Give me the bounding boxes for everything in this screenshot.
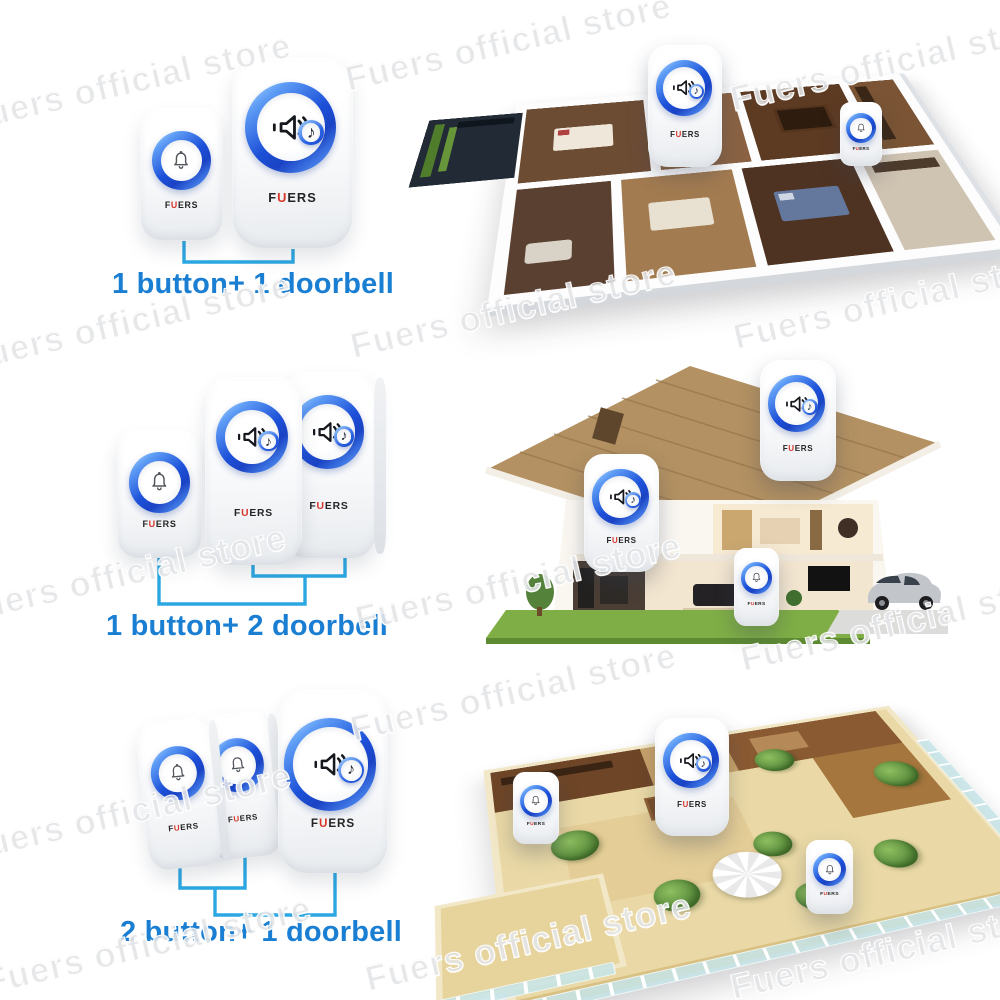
doorbell-receiver: ♪ FUERS xyxy=(655,718,729,836)
brand-logo: FUERS xyxy=(117,519,202,529)
music-note-icon: ♪ xyxy=(334,426,355,447)
led-ring: ♪ xyxy=(592,469,648,525)
brand-logo: FUERS xyxy=(806,891,853,897)
music-note-icon: ♪ xyxy=(802,399,818,415)
led-ring xyxy=(148,743,207,802)
doorbell-button-transmitter: FUERS xyxy=(117,430,202,558)
room-bath-1 xyxy=(504,181,615,295)
doorbell-receiver: ♪ FUERS xyxy=(278,690,388,873)
doorbell-receiver: ♪ FUERS xyxy=(232,58,353,248)
doorbell-button-transmitter: FUERS xyxy=(140,108,223,240)
doorbell-button-transmitter: FUERS xyxy=(734,548,779,626)
brand-logo: FUERS xyxy=(840,146,882,151)
music-note-icon: ♪ xyxy=(625,492,641,508)
doorbell-button-transmitter: FUERS xyxy=(134,716,225,871)
terrace-deck xyxy=(483,706,1000,1000)
product-infographic: FUERS ♪ FUERS ♪ FUERS FUERS xyxy=(0,0,1000,1000)
brand-logo: FUERS xyxy=(734,602,779,607)
doorbell-receiver: ♪ FUERS xyxy=(760,360,836,481)
led-ring xyxy=(129,452,189,512)
room-bedroom-2 xyxy=(621,169,756,281)
scene-apartment-floor-plan xyxy=(485,35,990,280)
brand-logo: FUERS xyxy=(140,200,223,210)
music-note-icon: ♪ xyxy=(258,431,278,451)
brand-logo: FUERS xyxy=(232,190,353,205)
bell-icon xyxy=(157,752,199,794)
led-ring: ♪ xyxy=(216,401,289,474)
music-note-icon: ♪ xyxy=(298,120,323,145)
brand-logo: FUERS xyxy=(513,822,559,827)
brand-logo: FUERS xyxy=(205,508,302,519)
doorbell-button-transmitter: FUERS xyxy=(840,102,882,166)
led-ring: ♪ xyxy=(656,60,712,116)
led-ring: ♪ xyxy=(768,375,825,432)
tree xyxy=(867,836,926,871)
led-ring: ♪ xyxy=(663,733,719,789)
floor-plan xyxy=(486,73,1000,316)
room-media xyxy=(409,113,523,188)
bell-icon xyxy=(524,789,547,812)
brand-logo: FUERS xyxy=(145,819,222,836)
music-note-icon: ♪ xyxy=(696,756,712,772)
led-ring xyxy=(846,113,876,143)
led-ring xyxy=(152,131,211,190)
bell-icon xyxy=(745,566,768,589)
doorbell-button-transmitter: FUERS xyxy=(806,840,853,914)
bell-icon xyxy=(850,118,871,139)
brand-logo: FUERS xyxy=(584,536,659,545)
doorbell-receiver: ♪ FUERS xyxy=(648,45,722,167)
bell-icon xyxy=(161,140,203,182)
led-ring: ♪ xyxy=(284,718,376,810)
room-bedroom-1 xyxy=(518,100,651,184)
brand-logo: FUERS xyxy=(278,817,388,830)
led-ring xyxy=(813,853,846,886)
scene-house-cutaway xyxy=(478,352,953,652)
doorbell-receiver: ♪ FUERS xyxy=(205,377,302,565)
brand-logo: FUERS xyxy=(760,444,836,453)
music-note-icon: ♪ xyxy=(338,757,364,783)
bell-icon xyxy=(818,858,842,882)
brand-logo: FUERS xyxy=(655,800,729,809)
brand-logo: FUERS xyxy=(648,130,722,139)
music-note-icon: ♪ xyxy=(689,84,705,100)
led-ring: ♪ xyxy=(245,82,336,173)
kit-label-2: 1 button+ 2 doorbell xyxy=(82,610,412,643)
led-ring xyxy=(741,562,773,594)
bell-icon xyxy=(138,461,181,504)
doorbell-button-transmitter: FUERS xyxy=(513,772,559,844)
kit-label-1: 1 button+ 1 doorbell xyxy=(93,268,413,301)
led-ring xyxy=(520,785,553,818)
glass-railing xyxy=(916,738,1000,885)
doorbell-receiver: ♪ FUERS xyxy=(584,454,659,572)
kit-label-3: 2 button+ 1 doorbell xyxy=(96,916,426,949)
